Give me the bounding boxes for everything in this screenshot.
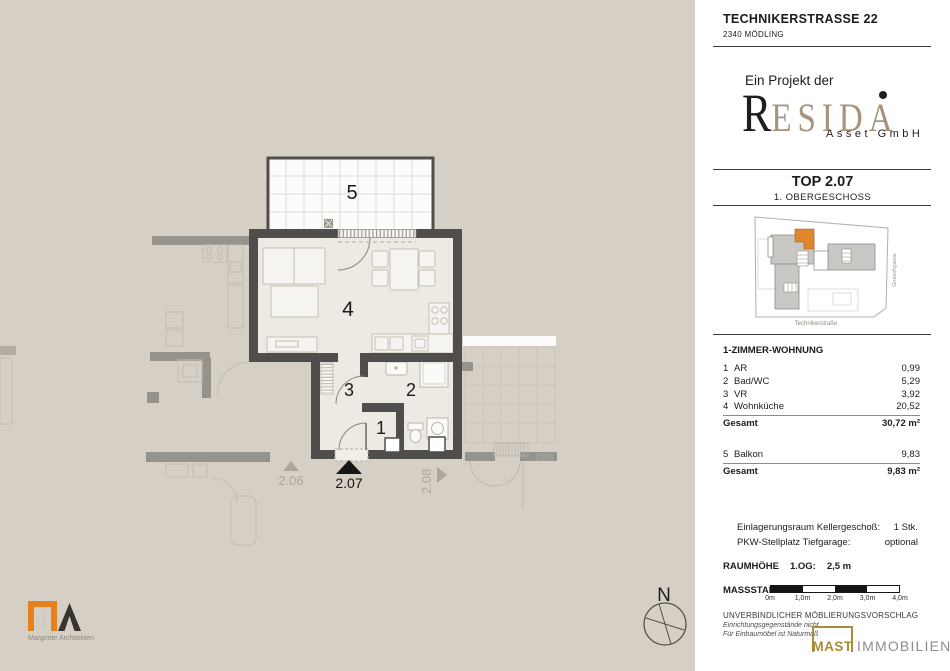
row-nr: 5 [723,449,734,462]
divider [713,334,931,335]
extras-label: PKW-Stellplatz Tiefgarage: [737,536,850,551]
row-nr: 4 [723,401,734,414]
scale-tick: 4,0m [892,595,908,602]
dining-table [390,249,418,290]
info-panel: TECHNIKERSTRASSE 22 2340 MÖDLING Ein Pro… [695,0,950,671]
balcony-door-glazing [338,230,416,238]
room-label-balkon: 5 [346,182,357,204]
unit-floor: 1. OBERGESCHOSS [695,192,950,203]
wall-niche [385,438,400,452]
broker-logo: MAST IMMOBILIEN [812,626,950,652]
room-label-bad: 2 [406,380,416,400]
row-name: Wohnküche [734,401,896,414]
scale-tick: 0m [765,595,775,602]
entrance-threshold [335,449,368,461]
room-height-value: 2,5 m [827,561,851,572]
room-label-vr: 3 [344,380,354,400]
row-area: 20,52 [896,401,920,414]
broker-logo-name: MAST [812,640,852,654]
row-name: Balkon [734,449,902,462]
unit-label-207: 2.07 [335,475,362,491]
site-map-street-side: Grutschgasse [892,253,898,287]
divider [713,205,931,206]
scale-tick: 1,0m [795,595,811,602]
table-row: 2 Bad/WC 5,29 [723,376,920,389]
row-area: 9,83 [902,449,921,462]
table-row: 1 AR 0,99 [723,363,920,376]
area-table-heading: 1-ZIMMER-WOHNUNG [723,345,920,356]
room-height-label: RAUMHÖHE [723,561,779,572]
room-height: RAUMHÖHE1.OG:2,5 m [723,561,862,572]
extras-label: Einlagerungsraum Kellergeschoß: [737,521,880,536]
total-label: Gesamt [723,418,882,431]
sheet-subtitle: 2340 MÖDLING [723,30,784,39]
row-area: 3,92 [902,389,921,402]
disclaimer-line3: Für Einbaumöbel ist Naturmaß [723,631,818,638]
architect-name-1: Marginter [28,635,58,642]
row-area: 0,99 [902,363,921,376]
row-name: AR [734,363,902,376]
table-row: 5 Balkon 9,83 [723,449,920,464]
total-value: 9,83 m² [887,466,920,479]
floorplan-sheet: 5 4 3 2 1 2.06 2.07 2.08 N [0,0,950,671]
divider [713,169,931,170]
scale-ticks: 0m 1,0m 2,0m 3,0m 4,0m [770,595,900,605]
row-name: Bad/WC [734,376,902,389]
extras-row: Einlagerungsraum Kellergeschoß: 1 Stk. [737,521,918,536]
room-label-wohnkueche: 4 [342,298,354,321]
toilet [408,423,423,430]
wardrobe [321,363,333,394]
row-nr: 3 [723,389,734,402]
table-row: 3 VR 3,92 [723,389,920,402]
room-label-ar: 1 [376,418,386,438]
disclaimer-line2: Einrichtungsgegenstände nicht [723,622,819,629]
row-nr: 1 [723,363,734,376]
disclaimer-line1: UNVERBINDLICHER MÖBLIERUNGSVORSCHLAG [723,611,918,620]
room-height-floor: 1.OG: [790,561,816,572]
compass-north-label: N [657,585,671,606]
architect-name-2: Architekten [59,635,94,642]
scale-tick: 2,0m [827,595,843,602]
extras-row: PKW-Stellplatz Tiefgarage: optional [737,536,918,551]
sheet-title: TECHNIKERSTRASSE 22 [723,12,878,26]
extras-value: 1 Stk. [894,521,918,536]
area-table: 1-ZIMMER-WOHNUNG 1 AR 0,99 2 Bad/WC 5,29… [723,345,920,431]
balcony-table: 5 Balkon 9,83 Gesamt 9,83 m² [723,449,920,479]
total-label: Gesamt [723,466,887,479]
resida-logo-initial: R [742,83,771,143]
broker-logo-suffix: IMMOBILIEN [857,639,950,653]
table-row: 4 Wohnküche 20,52 [723,401,920,416]
scale-tick: 3,0m [860,595,876,602]
resida-logo-dot-icon [879,91,887,99]
washing-machine [427,418,448,439]
row-nr: 2 [723,376,734,389]
site-map: Grutschgasse Technikerstraße [738,211,945,331]
site-map-street-bottom: Technikerstraße [795,321,838,327]
unit-label-206: 2.06 [278,473,303,488]
divider [713,46,931,47]
drawing-area: 5 4 3 2 1 2.06 2.07 2.08 N [0,0,695,671]
wall-niche [429,437,445,452]
broker-logo-frame-icon: MAST [812,626,853,652]
scale-bar [770,585,900,593]
floorplan-svg: 5 4 3 2 1 2.06 2.07 2.08 N [0,0,695,671]
table-total-row: Gesamt 9,83 m² [723,464,920,479]
row-name: VR [734,389,902,402]
total-value: 30,72 m² [882,418,920,431]
extras-value: optional [885,536,918,551]
unit-title: TOP 2.07 [695,174,950,190]
unit-label-208: 2.08 [419,469,434,494]
resida-logo-subline: Asset GmbH [826,128,923,140]
table-total-row: Gesamt 30,72 m² [723,416,920,431]
row-area: 5,29 [902,376,921,389]
extras-list: Einlagerungsraum Kellergeschoß: 1 Stk. P… [737,521,918,550]
